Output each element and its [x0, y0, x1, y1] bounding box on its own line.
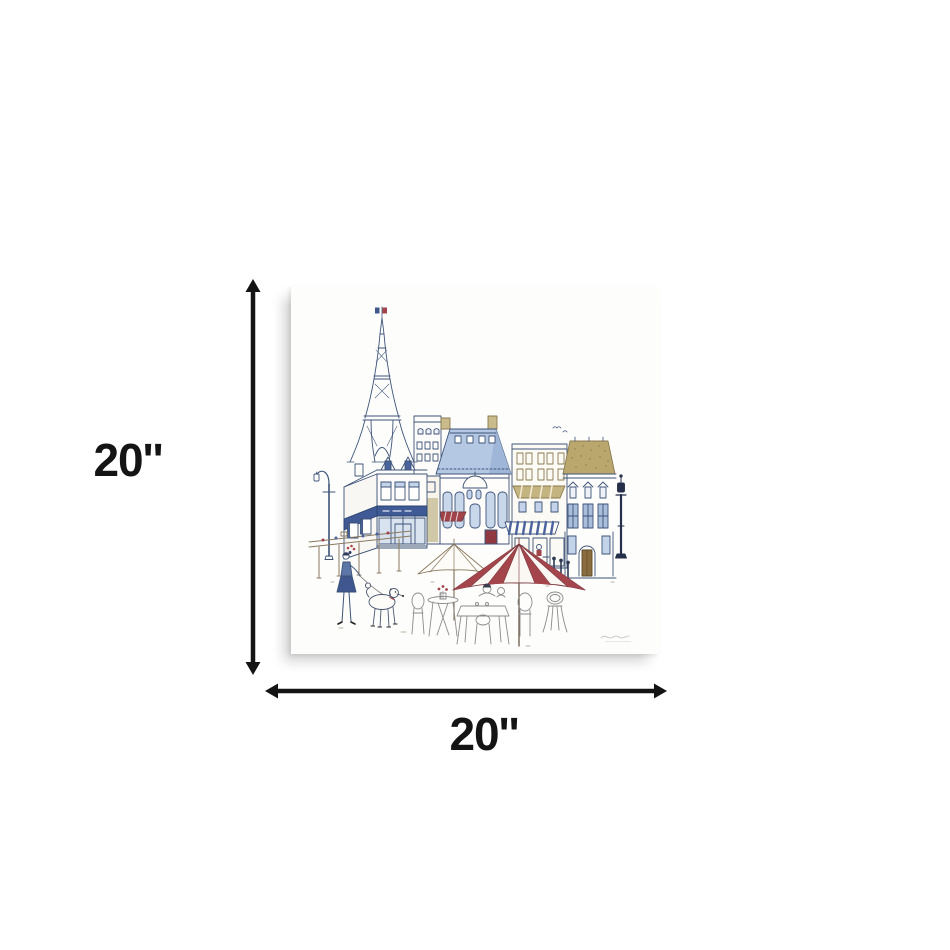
- product-dimension-diagram: 20'' 20'': [0, 0, 950, 950]
- blue-mansard-building: [436, 416, 511, 544]
- red-awning: [440, 512, 466, 521]
- height-dimension-label: 20'': [76, 437, 180, 483]
- paris-street-scene-artwork: [291, 286, 659, 654]
- eiffel-tower: [347, 307, 417, 462]
- cafe-tables-and-chairs: [412, 584, 567, 645]
- width-dimension-arrow: [264, 678, 668, 704]
- background-building: [414, 416, 441, 476]
- artist-signature: [601, 636, 631, 642]
- french-flag-icon: [375, 308, 387, 314]
- birds-icon: [553, 427, 567, 432]
- seated-person: [479, 584, 495, 597]
- width-dimension-label: 20'': [422, 711, 546, 757]
- height-dimension-arrow: [240, 278, 266, 676]
- poodle-dog: [365, 583, 404, 627]
- tan-mansard-building: [563, 437, 616, 578]
- blue-striped-awning: [505, 522, 559, 534]
- tan-striped-awning: [513, 486, 565, 498]
- street-lamp-right-icon: [616, 475, 627, 558]
- canvas-art-print: [291, 286, 659, 654]
- red-door: [485, 530, 497, 544]
